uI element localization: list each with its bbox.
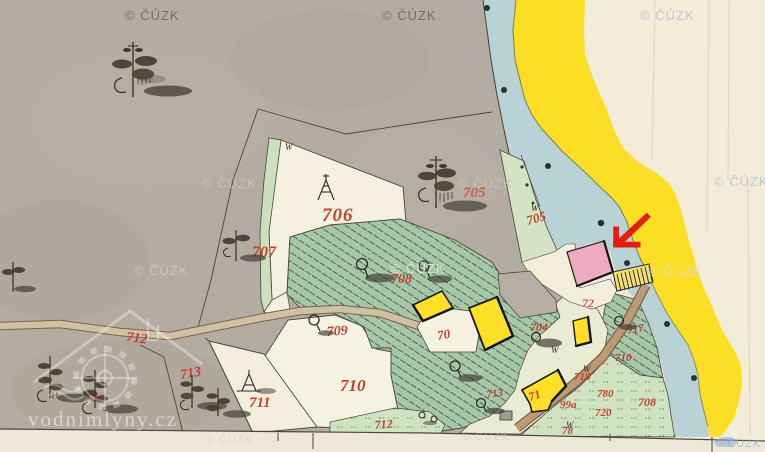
svg-text:© ČÚZK: © ČÚZK [640, 8, 695, 23]
svg-text:© ČÚZK: © ČÚZK [391, 261, 446, 276]
svg-text:© ČÚZK: © ČÚZK [206, 433, 253, 446]
svg-text:706: 706 [322, 205, 354, 226]
svg-text:© ČÚZK: © ČÚZK [462, 430, 509, 443]
svg-text:708: 708 [638, 395, 656, 409]
svg-text:© ČÚZK: © ČÚZK [382, 8, 437, 23]
svg-text:720: 720 [595, 407, 612, 419]
svg-text:© ČÚZK: © ČÚZK [134, 263, 189, 278]
svg-text:© ČÚZK: © ČÚZK [714, 174, 765, 189]
svg-text:710: 710 [340, 376, 366, 395]
svg-text:© ČÚZK: © ČÚZK [202, 176, 257, 191]
svg-text:© ČÚZK: © ČÚZK [125, 8, 180, 23]
svg-text:© ČÚZK: © ČÚZK [458, 176, 513, 191]
svg-text:704: 704 [530, 320, 548, 334]
svg-text:712: 712 [126, 330, 149, 347]
svg-text:712: 712 [374, 416, 393, 432]
svg-text:713: 713 [486, 387, 505, 401]
svg-text:99a: 99a [560, 399, 577, 411]
svg-text:vodnimlyny.cz: vodnimlyny.cz [28, 407, 178, 431]
svg-text:780: 780 [597, 388, 614, 400]
svg-text:711: 711 [249, 395, 271, 411]
svg-text:© ČÚZK: © ČÚZK [648, 264, 703, 279]
svg-text:72: 72 [582, 296, 594, 310]
svg-text:710: 710 [615, 352, 632, 364]
